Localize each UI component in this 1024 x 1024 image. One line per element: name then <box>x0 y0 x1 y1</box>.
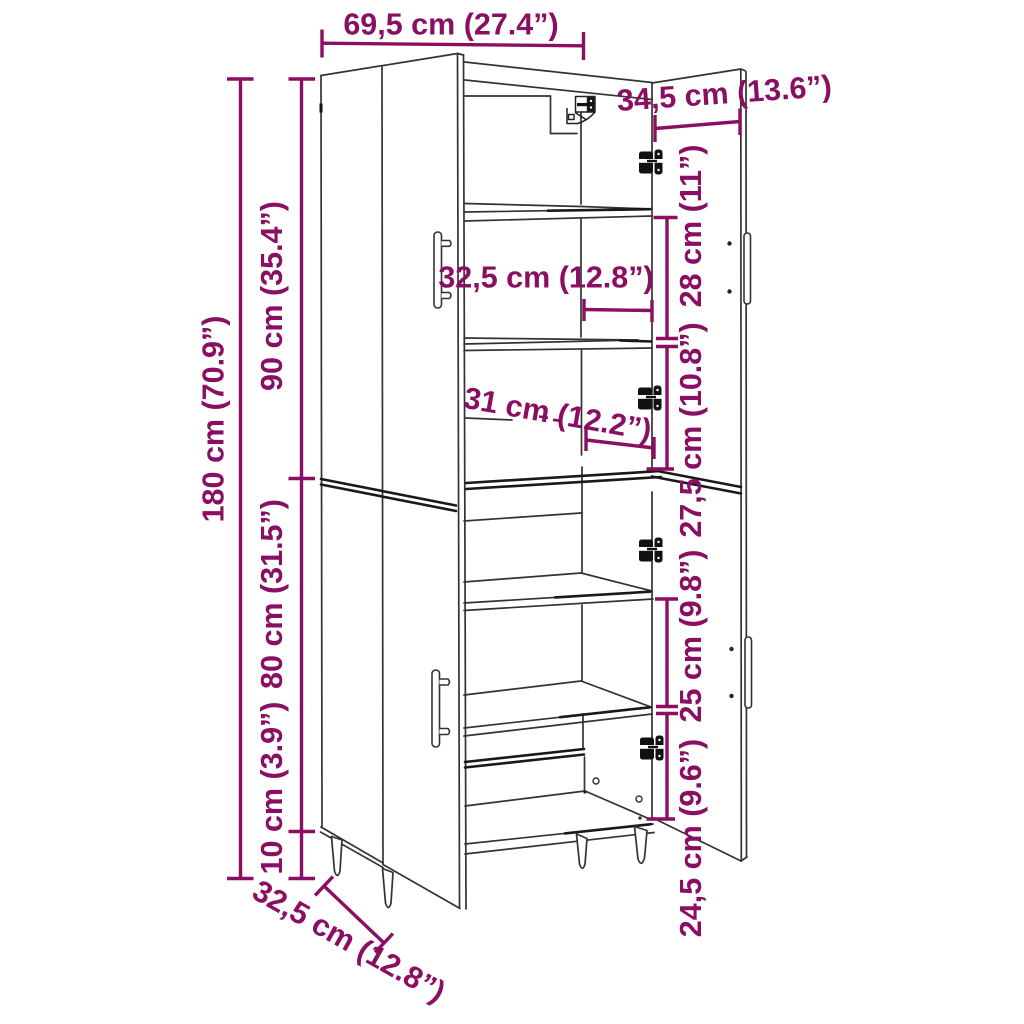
svg-text:10 cm (3.9”): 10 cm (3.9”) <box>255 702 289 875</box>
svg-text:25 cm (9.8”): 25 cm (9.8”) <box>674 550 708 723</box>
svg-text:80 cm (31.5”): 80 cm (31.5”) <box>255 499 289 689</box>
svg-text:180 cm (70.9”): 180 cm (70.9”) <box>197 316 231 523</box>
svg-text:28 cm (11”): 28 cm (11”) <box>674 145 708 308</box>
svg-text:69,5 cm (27.4”): 69,5 cm (27.4”) <box>343 8 558 42</box>
svg-text:27,5 cm (10.8”): 27,5 cm (10.8”) <box>674 322 708 537</box>
svg-text:32,5 cm (12.8”): 32,5 cm (12.8”) <box>438 261 653 295</box>
svg-text:24,5 cm (9.6”): 24,5 cm (9.6”) <box>674 739 708 937</box>
svg-text:90 cm (35.4”): 90 cm (35.4”) <box>255 201 289 391</box>
